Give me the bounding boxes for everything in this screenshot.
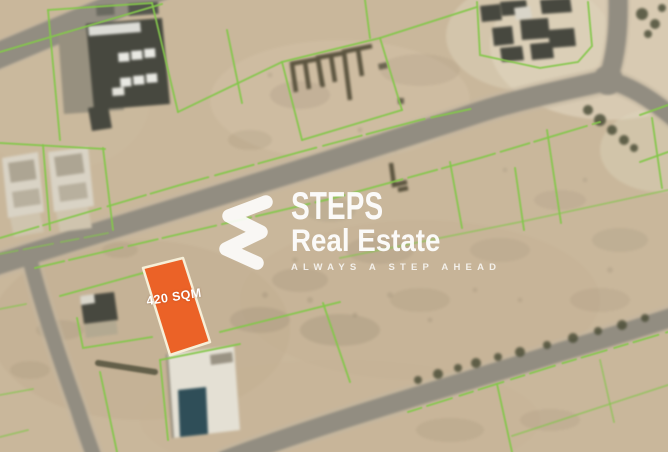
steps-logo-icon <box>216 192 274 270</box>
brand-watermark: STEPS Real Estate ALWAYS A STEP AHEAD <box>216 190 501 273</box>
brand-name-bottom: Real Estate <box>291 225 476 257</box>
brand-name-top: STEPS <box>291 190 442 224</box>
satellite-map-viewport[interactable]: 420 SQM STEPS Real Estate ALWAYS A STEP … <box>0 0 668 452</box>
brand-tagline: ALWAYS A STEP AHEAD <box>291 262 501 273</box>
